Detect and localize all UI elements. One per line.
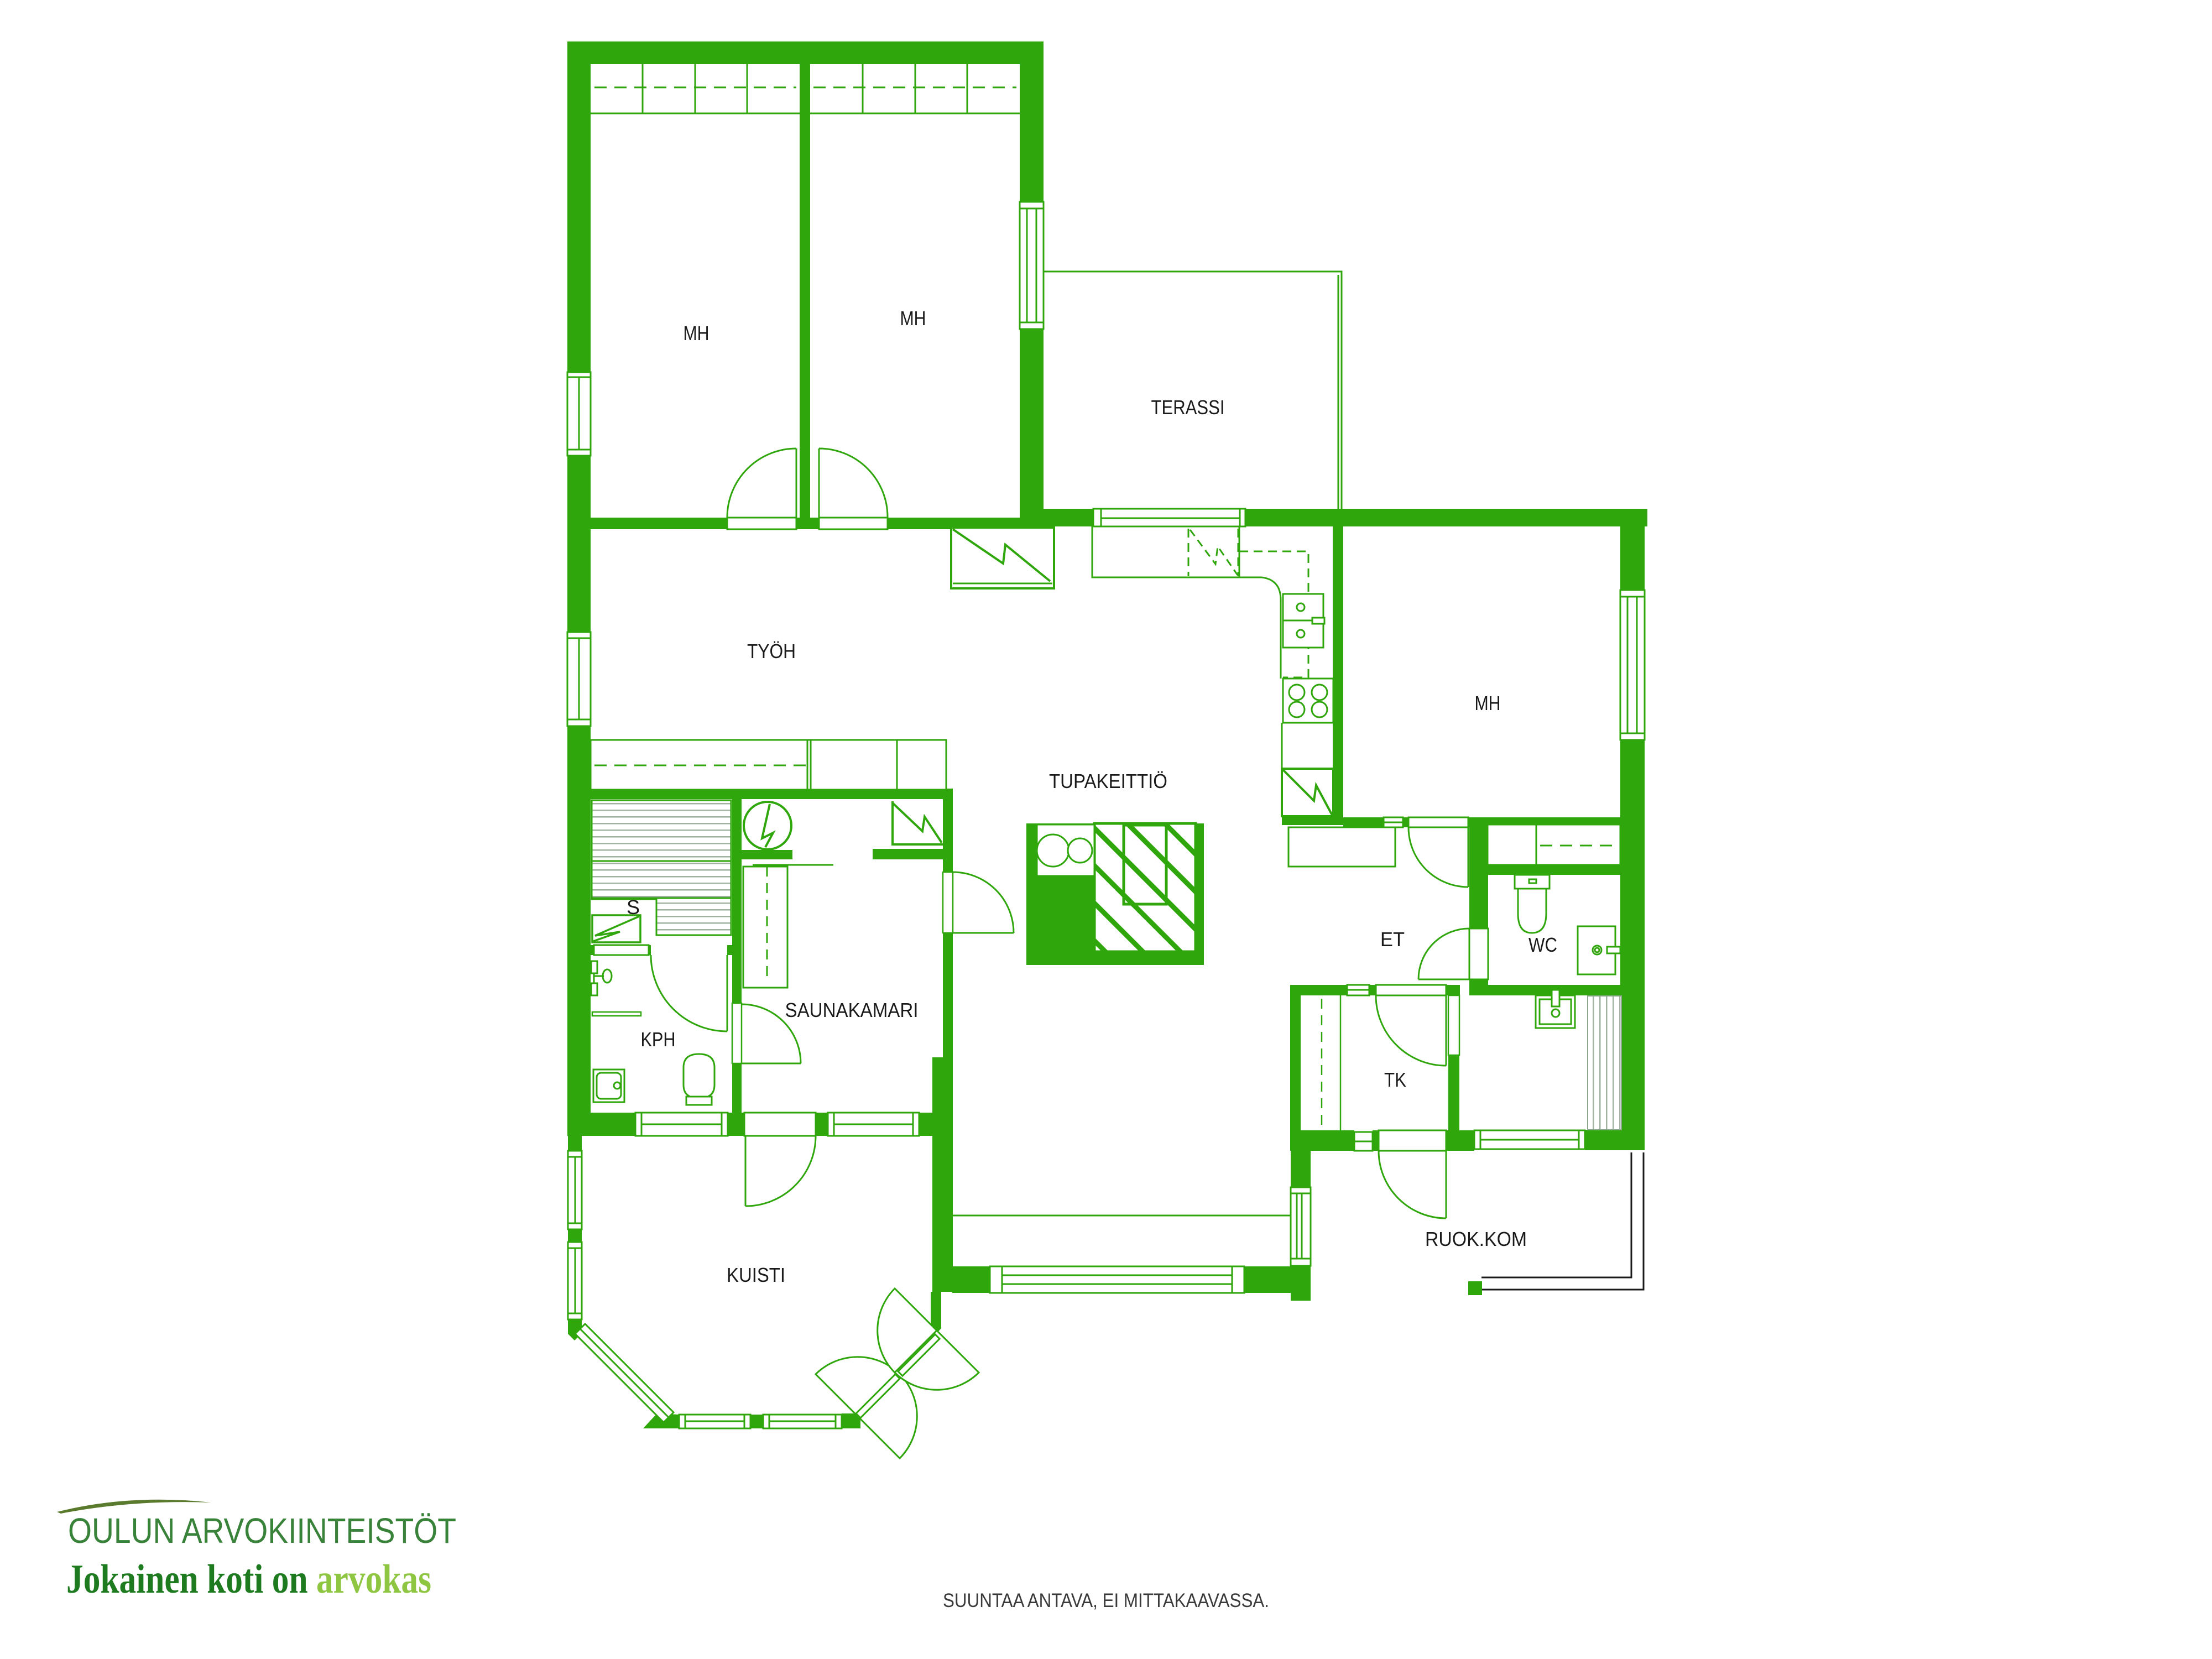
svg-text:SAUNAKAMARI: SAUNAKAMARI <box>785 999 919 1021</box>
svg-text:MH: MH <box>1475 692 1501 714</box>
svg-text:Jokainen koti on arvokas: Jokainen koti on arvokas <box>66 1557 431 1602</box>
svg-text:TYÖH: TYÖH <box>747 640 796 662</box>
svg-text:OULUN ARVOKIINTEISTÖT: OULUN ARVOKIINTEISTÖT <box>68 1511 456 1551</box>
svg-text:KUISTI: KUISTI <box>727 1264 785 1286</box>
svg-text:KPH: KPH <box>641 1028 676 1051</box>
svg-text:TUPAKEITTIÖ: TUPAKEITTIÖ <box>1049 770 1167 792</box>
svg-text:TK: TK <box>1384 1068 1406 1091</box>
svg-text:RUOK.KOM: RUOK.KOM <box>1425 1228 1527 1250</box>
svg-text:WC: WC <box>1528 933 1557 956</box>
svg-text:MH: MH <box>684 322 709 345</box>
svg-text:TERASSI: TERASSI <box>1151 396 1225 419</box>
svg-text:MH: MH <box>900 307 926 330</box>
svg-text:ET: ET <box>1380 928 1405 951</box>
svg-text:SUUNTAA ANTAVA, EI MITTAKAAVAS: SUUNTAA ANTAVA, EI MITTAKAAVASSA. <box>943 1590 1269 1611</box>
svg-text:S: S <box>627 896 640 919</box>
